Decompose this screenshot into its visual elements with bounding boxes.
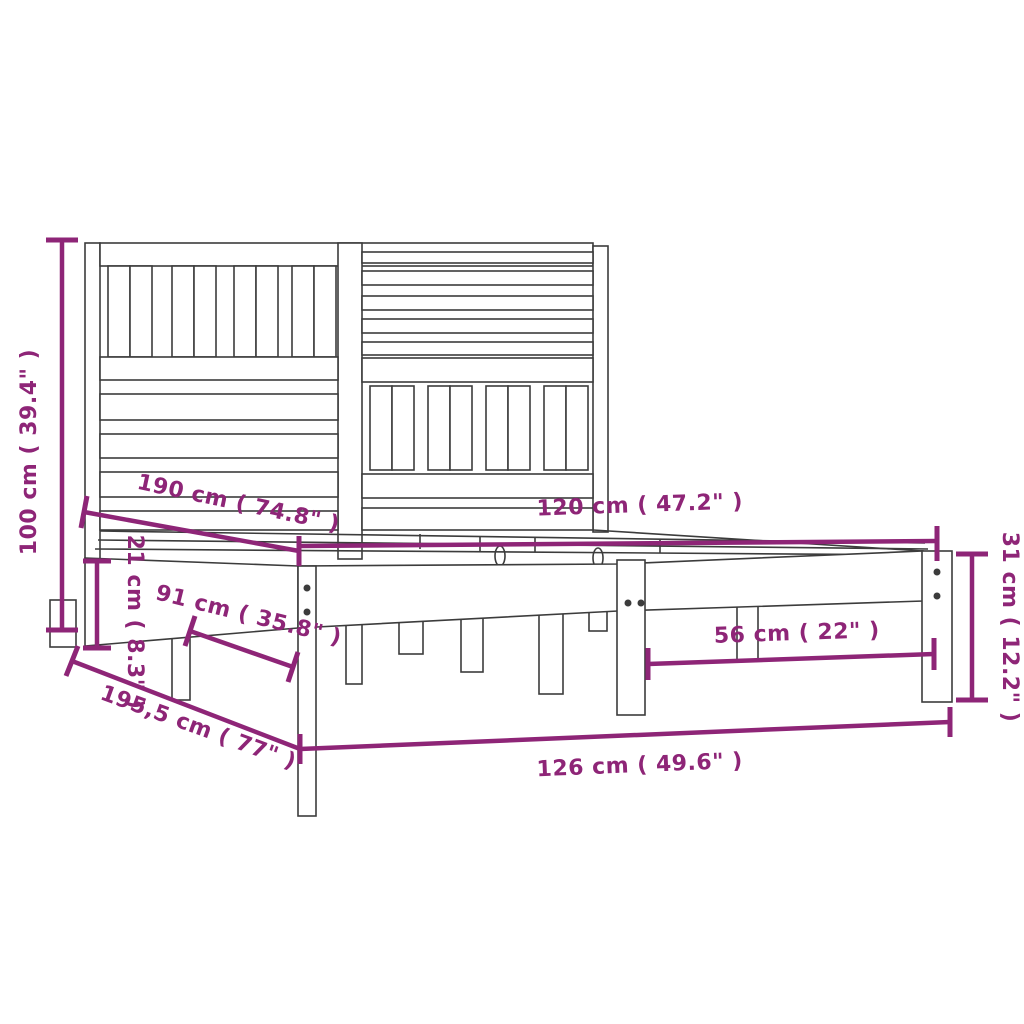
screw-icon xyxy=(304,609,311,616)
leg xyxy=(539,610,563,694)
corner-leg-near xyxy=(298,566,316,816)
dim-label-outer-width: 126 cm ( 49.6" ) xyxy=(536,749,743,783)
dim-foot-clearance: 56 cm ( 22" ) xyxy=(648,618,934,680)
headboard-center-post xyxy=(338,243,362,559)
center-leg-near xyxy=(617,560,645,715)
screw-icon xyxy=(638,600,645,607)
dim-label-total-height: 100 cm ( 39.4" ) xyxy=(17,349,42,555)
leg xyxy=(461,612,483,672)
screw-icon xyxy=(934,593,941,600)
headboard-right-horizontal-slats xyxy=(362,252,593,382)
slat-strap-loop xyxy=(495,546,505,566)
headboard-right-vertical-slats xyxy=(370,386,588,470)
dim-outer-width: 126 cm ( 49.6" ) xyxy=(300,707,950,782)
headboard-left-vertical-slats xyxy=(108,266,336,357)
headboard-right-post xyxy=(593,246,608,532)
bed-frame-drawing: 100 cm ( 39.4" ) 190 cm ( 74.8" ) 120 cm… xyxy=(0,0,1024,1024)
dim-total-height: 100 cm ( 39.4" ) xyxy=(17,240,78,630)
dim-label-outer-length: 195,5 cm ( 77" ) xyxy=(97,681,299,775)
dim-label-base-height: 31 cm ( 12.2" ) xyxy=(997,532,1022,723)
leg xyxy=(589,611,607,631)
headboard xyxy=(85,243,608,560)
screw-icon xyxy=(625,600,632,607)
dim-base-height: 31 cm ( 12.2" ) xyxy=(956,532,1022,723)
screw-icon xyxy=(934,569,941,576)
screw-icon xyxy=(304,585,311,592)
dim-label-foot-clearance: 56 cm ( 22" ) xyxy=(713,618,880,649)
dimension-diagram: 100 cm ( 39.4" ) 190 cm ( 74.8" ) 120 cm… xyxy=(0,0,1024,1024)
